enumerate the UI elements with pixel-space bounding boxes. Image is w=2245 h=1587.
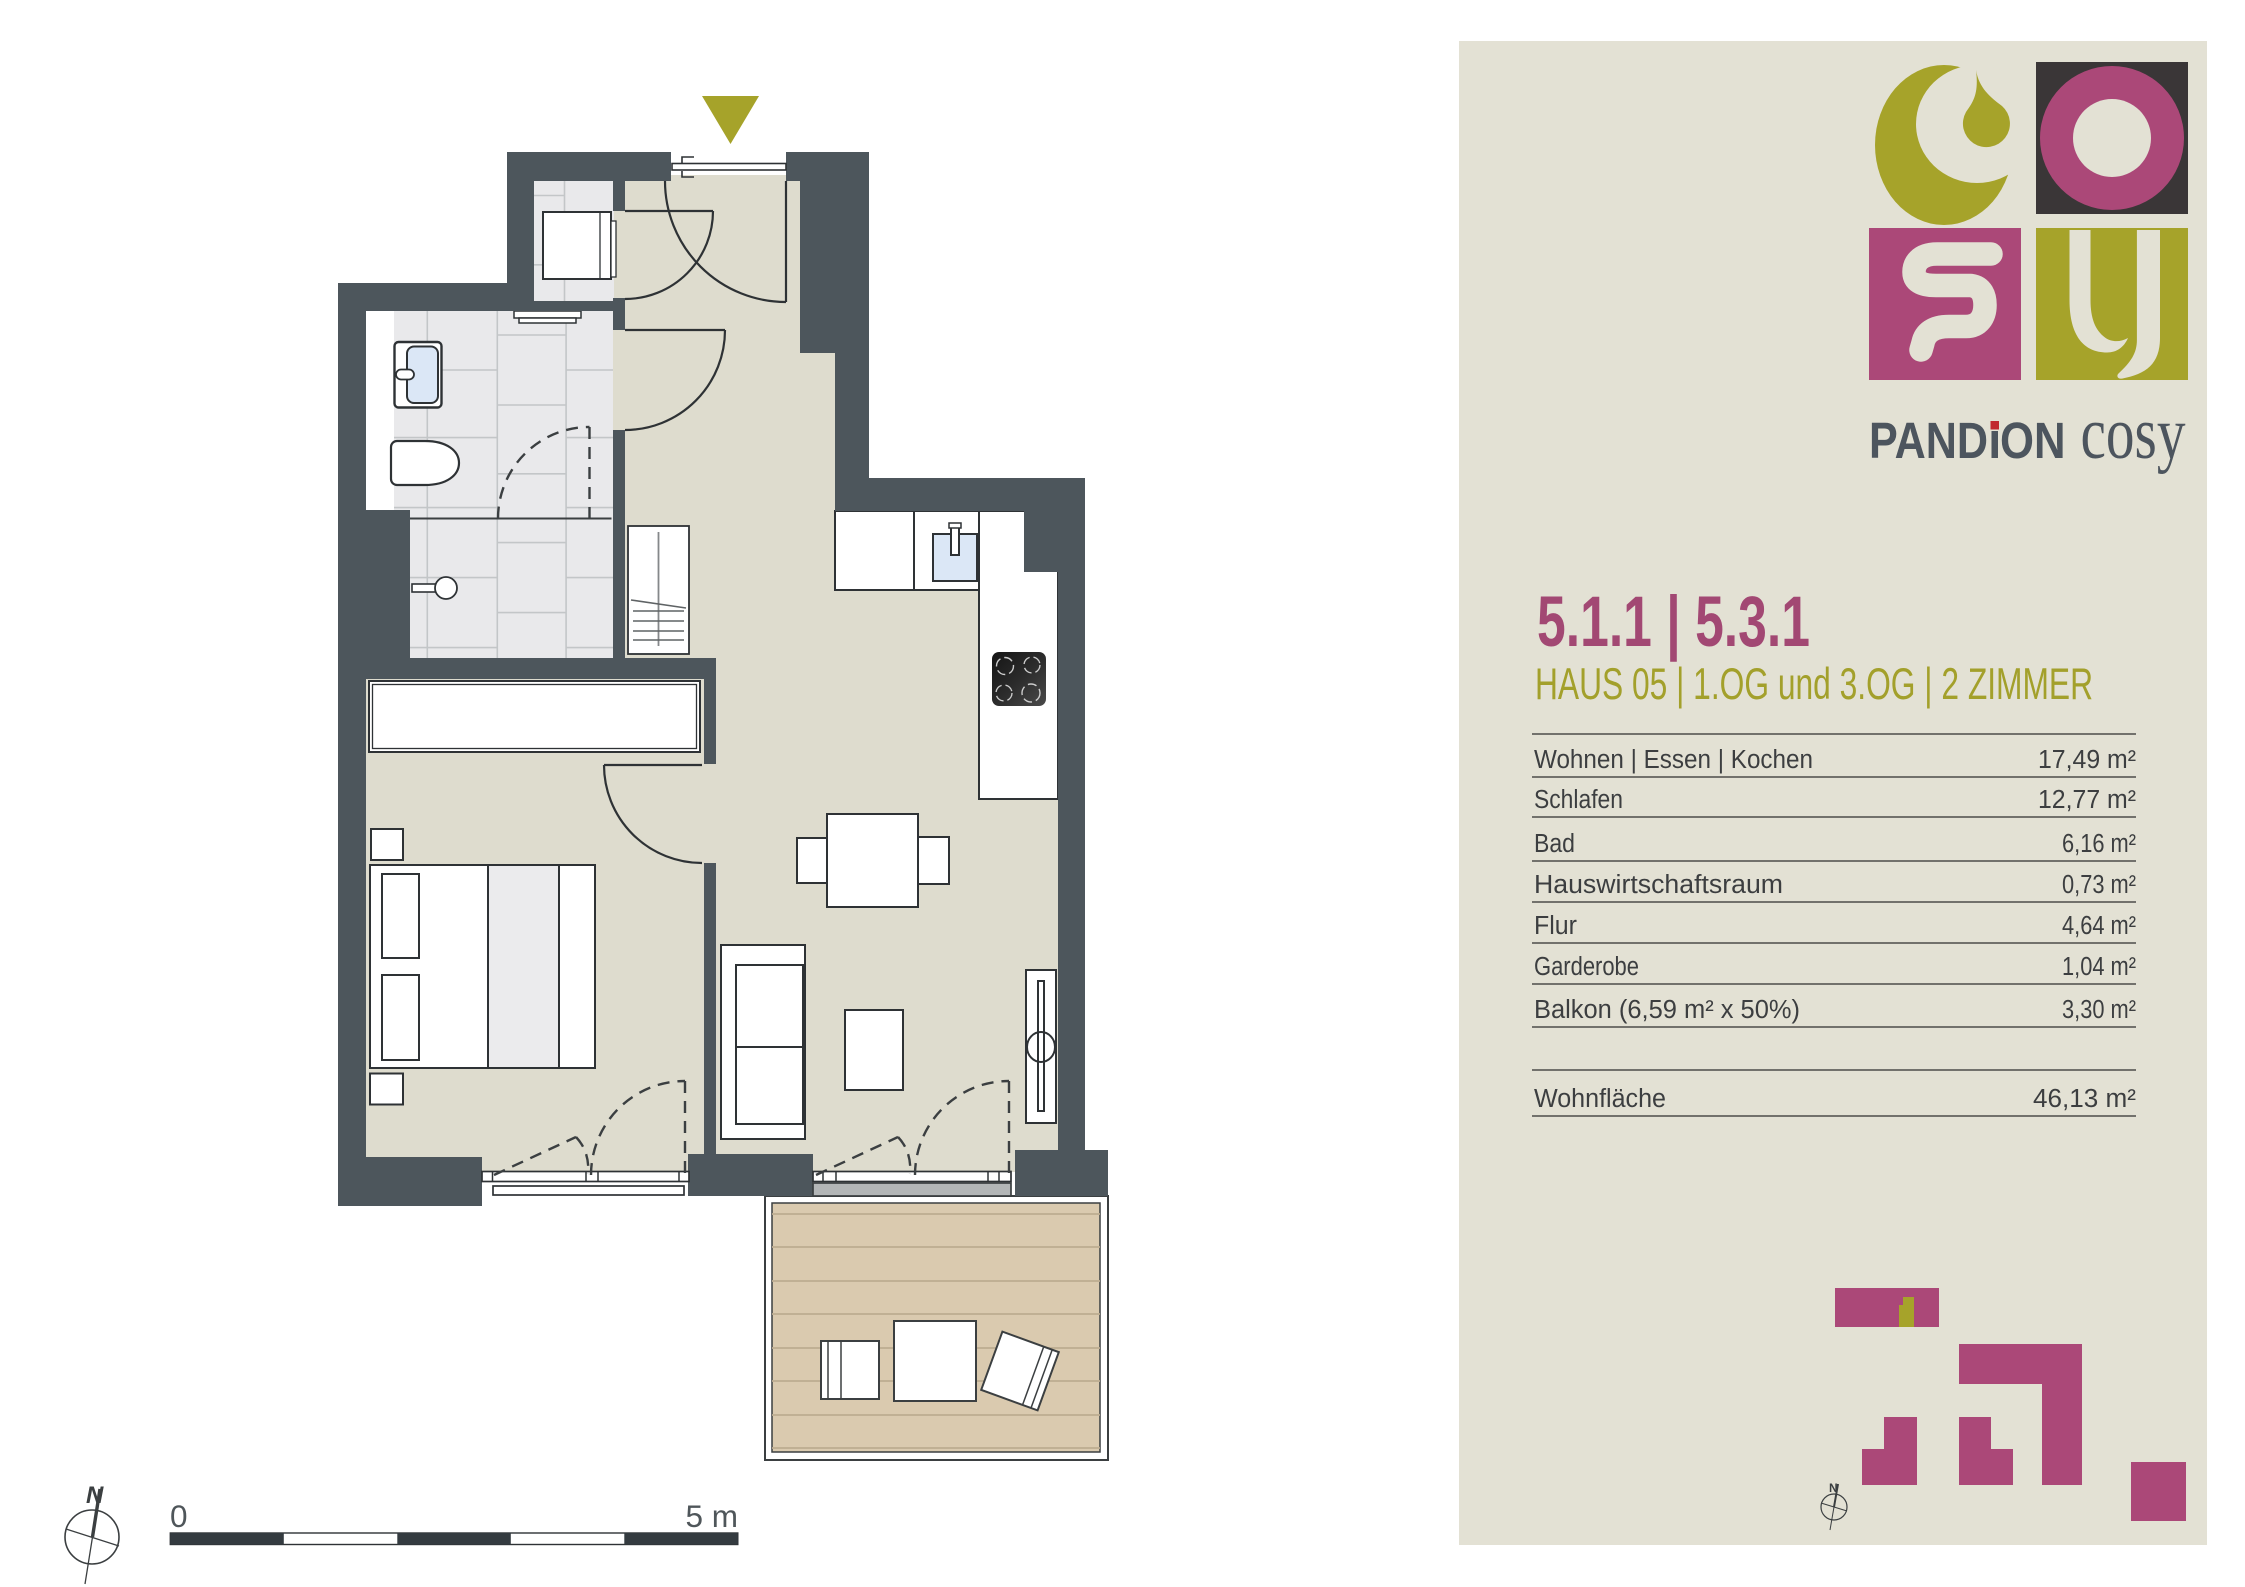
svg-text:46,13 m²: 46,13 m²: [2033, 1085, 2136, 1113]
svg-text:6,16 m²: 6,16 m²: [2062, 830, 2136, 858]
svg-text:12,77 m²: 12,77 m²: [2038, 786, 2136, 814]
svg-text:Balkon (6,59 m² x 50%): Balkon (6,59 m² x 50%): [1534, 996, 1800, 1024]
svg-text:Hauswirtschaftsraum: Hauswirtschaftsraum: [1534, 871, 1783, 899]
svg-text:Wohnen | Essen | Kochen: Wohnen | Essen | Kochen: [1534, 746, 1813, 774]
svg-text:3,30 m²: 3,30 m²: [2062, 996, 2136, 1024]
svg-text:Garderobe: Garderobe: [1534, 953, 1639, 981]
svg-text:N: N: [86, 1482, 104, 1509]
svg-text:HAUS 05 | 1.OG und 3.OG | 2 ZI: HAUS 05 | 1.OG und 3.OG | 2 ZIMMER: [1535, 660, 2093, 709]
svg-text:0: 0: [170, 1498, 188, 1534]
svg-text:Schlafen: Schlafen: [1534, 786, 1623, 814]
svg-text:Bad: Bad: [1534, 830, 1575, 858]
svg-text:Flur: Flur: [1534, 912, 1577, 940]
svg-text:5.1.1 | 5.3.1: 5.1.1 | 5.3.1: [1537, 583, 1810, 662]
svg-text:ON: ON: [2000, 412, 2066, 469]
svg-text:17,49 m²: 17,49 m²: [2038, 746, 2136, 774]
svg-text:cosy: cosy: [2081, 393, 2186, 475]
svg-text:N: N: [1829, 1481, 1838, 1495]
svg-text:4,64 m²: 4,64 m²: [2062, 912, 2136, 940]
svg-text:0,73 m²: 0,73 m²: [2062, 871, 2136, 899]
svg-text:1,04 m²: 1,04 m²: [2062, 953, 2136, 981]
svg-text:Wohnfläche: Wohnfläche: [1534, 1085, 1666, 1113]
svg-text:PAND: PAND: [1869, 412, 1988, 469]
svg-text:5 m: 5 m: [685, 1498, 738, 1534]
